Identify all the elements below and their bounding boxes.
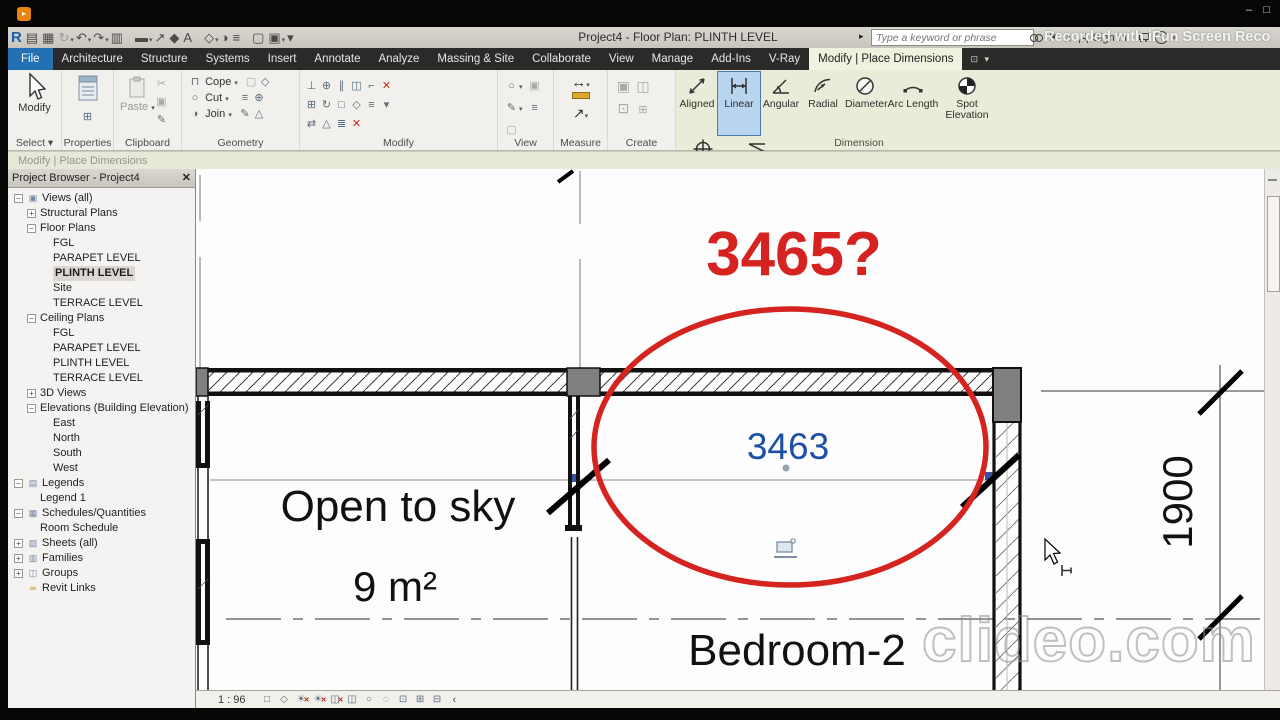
rotate-icon[interactable]: ↻ [319, 98, 334, 112]
steering-icon[interactable]: ▢ [504, 123, 519, 137]
links-icon: ∞ [27, 581, 39, 596]
create-panel: ▣ ◫ ⊡ ⊞ Create [608, 70, 676, 150]
tree-item-label: West [53, 461, 78, 476]
project-browser-title: Project Browser - Project4 [12, 169, 140, 187]
middle-wall[interactable] [548, 396, 609, 690]
tree-item-label: North [53, 431, 80, 446]
minimize-button[interactable]: – [1246, 4, 1252, 16]
vertical-scrollbar[interactable] [1264, 169, 1280, 690]
tree-item-floor-plans[interactable]: −Floor Plans [8, 221, 195, 236]
tree-item-site[interactable]: Site [8, 281, 195, 296]
revit-logo[interactable]: R [11, 29, 22, 47]
sync-icon[interactable]: ↻ [58, 29, 69, 47]
sheets-icon: ▧ [27, 536, 39, 551]
cutaway-icon[interactable]: ≡ [527, 101, 542, 115]
reveal-constraints-icon[interactable]: ⊡ [396, 693, 411, 706]
disabled-badge: ✕ [304, 694, 310, 707]
scale-button[interactable]: 1 : 96 [218, 694, 246, 706]
sun-path-icon[interactable]: ☀✕ [294, 693, 309, 706]
screen-recorder-watermark: Recorded with iFun Screen Reco [1044, 29, 1280, 45]
measure-icon-caret[interactable]: ▾ [149, 37, 153, 44]
tree-item-north[interactable]: North [8, 431, 195, 446]
tree-item-label: Room Schedule [40, 521, 118, 536]
copy-element-icon[interactable]: ⊞ [304, 98, 319, 112]
select-panel: Modify Select ▾ [8, 70, 62, 150]
undo-icon[interactable]: ↶ [76, 29, 87, 47]
scrollbar-thumb[interactable] [1267, 196, 1280, 292]
ribbon: Modify Select ▾ ⊞ Properties [8, 70, 1280, 151]
trim-icon[interactable]: ⌐ [364, 79, 379, 93]
tree-item-label: FGL [53, 326, 74, 341]
dimension-button-label: Radial [808, 98, 838, 110]
move-icon[interactable]: ⊕ [319, 79, 334, 93]
type-properties-icon[interactable]: ⊞ [80, 110, 95, 124]
expand-icon[interactable]: + [27, 389, 36, 398]
aligned-icon [685, 74, 709, 98]
dimension-symbol-icon[interactable] [774, 539, 797, 557]
shadows-icon[interactable]: ☀✕ [311, 693, 326, 706]
align-multi-icon[interactable]: ≣ [334, 117, 349, 131]
legends-icon: ▤ [27, 476, 39, 491]
ribbon-tab-bar: FileArchitectureStructureSystemsInsertAn… [8, 48, 1280, 70]
tree-item-label: Floor Plans [40, 221, 96, 236]
properties-panel-label[interactable]: Properties [62, 137, 113, 149]
crop-region-visible-icon[interactable]: ◫ [345, 693, 360, 706]
offset-icon[interactable]: ∥ [334, 79, 349, 93]
tree-item-fgl[interactable]: FGL [8, 326, 195, 341]
join-button[interactable]: ◑ Join ▾ ✎△ [188, 107, 299, 123]
modify-panel-label[interactable]: Modify [300, 137, 497, 149]
window-title: Project4 - Floor Plan: PLINTH LEVEL [548, 30, 808, 44]
tag-icon[interactable]: ◆ [169, 29, 179, 47]
search-expand-icon[interactable]: ▸ [859, 31, 864, 42]
tree-item-label: Sheets (all) [42, 536, 98, 551]
paste-label: Paste [120, 101, 148, 113]
print-icon[interactable]: ▥ [111, 29, 123, 47]
switch-windows-icon-caret[interactable]: ▾ [282, 37, 286, 44]
screen-left-band [0, 0, 8, 720]
tree-item-elevations-building-elevation[interactable]: −Elevations (Building Elevation) [8, 401, 195, 416]
tree-item-terrace-level[interactable]: TERRACE LEVEL [8, 296, 195, 311]
create-panel-label[interactable]: Create [608, 137, 675, 149]
disabled-badge: ✕ [321, 694, 327, 707]
dimension-button-label: Aligned [679, 98, 714, 110]
tab-manage[interactable]: Manage [643, 48, 703, 70]
linear-icon [727, 74, 751, 98]
aligned-dimension-icon[interactable]: ↗ [155, 29, 166, 47]
section-icon[interactable]: ◑ [221, 29, 229, 47]
dimension-angular-button[interactable]: Angular [760, 72, 802, 135]
temporary-hide-isolate-icon[interactable]: ◌ [379, 693, 394, 706]
ruler-icon [572, 92, 590, 99]
tab-analyze[interactable]: Analyze [369, 48, 428, 70]
tree-item-3d-views[interactable]: +3D Views [8, 386, 195, 401]
maximize-button[interactable]: □ [1263, 4, 1270, 16]
tree-item-label: TERRACE LEVEL [53, 296, 143, 311]
families-icon: ▥ [27, 551, 39, 566]
modify-panel: ⊥⊕∥◫⌐✕ ⊞↻□◇≡▾ ⇄△≣✕ Modify [300, 70, 498, 150]
project-browser: Project Browser - Project4 ✕ −▣Views (al… [8, 169, 196, 708]
properties-icon[interactable] [76, 74, 100, 102]
view-panel-label[interactable]: View [498, 137, 553, 149]
switch-windows-icon[interactable]: ▣ [268, 29, 280, 47]
tree-item-room-schedule[interactable]: Room Schedule [8, 521, 195, 536]
expand-icon[interactable]: + [27, 209, 36, 218]
customize-qat-icon[interactable]: ▾ [287, 29, 294, 47]
clideo-watermark: clideo.com [922, 605, 1256, 676]
radial-icon [811, 74, 835, 98]
crop-view-icon[interactable]: ◫✕ [328, 693, 343, 706]
pin-icon[interactable]: ▾ [379, 98, 394, 112]
ribbon-display-toggle-icon[interactable]: ⊡ ▾ [962, 48, 991, 70]
tree-item-label: South [53, 446, 82, 461]
angular-icon [769, 74, 793, 98]
dimension-button-label: Spot Elevation [945, 98, 988, 121]
tab-structure[interactable]: Structure [132, 48, 197, 70]
create-group-icon[interactable]: ▣ [616, 79, 631, 93]
paste-button[interactable]: Paste ▾ [120, 76, 155, 113]
spot-elevation-icon [955, 74, 979, 98]
mouse-cursor [1045, 539, 1071, 576]
unlocked-view-icon[interactable]: ⊟ [430, 693, 445, 706]
tree-item-label: Groups [42, 566, 78, 581]
revit-application-window: ▸ – □ R▤▦↻▾↶▾↷▾▥▬▾↗◆A◇▾◑≡▢▣▾▾ Project4 -… [0, 0, 1280, 720]
tree-item-legends[interactable]: −▤Legends [8, 476, 195, 491]
tree-item-label: 3D Views [40, 386, 86, 401]
options-bar: Modify | Place Dimensions [8, 151, 1280, 169]
cut-geometry-button[interactable]: ○ Cut ▾ ≡⊕ [188, 91, 299, 107]
collapse-icon[interactable]: − [27, 224, 36, 233]
unpin-icon[interactable]: △ [319, 117, 334, 131]
tree-item-label: Elevations (Building Elevation) [40, 401, 189, 416]
split-icon[interactable]: ≡ [364, 98, 379, 112]
dimension-3463-text[interactable]: 3463 [747, 426, 829, 467]
collapse-icon[interactable]: − [14, 509, 23, 518]
create-similar-icon[interactable]: ◫ [635, 79, 650, 93]
tab-v-ray[interactable]: V-Ray [760, 48, 809, 70]
tree-item-south[interactable]: South [8, 446, 195, 461]
tree-item-legend-1[interactable]: Legend 1 [8, 491, 195, 506]
views-icon: ▣ [27, 191, 39, 206]
tree-item-label: Views (all) [42, 191, 93, 206]
tab-file[interactable]: File [8, 48, 53, 70]
tree-item-label: Legends [42, 476, 84, 491]
expand-icon[interactable]: + [14, 554, 23, 563]
match-properties-icon[interactable]: ✎ [154, 113, 169, 127]
open-icon[interactable]: ▤ [26, 29, 38, 47]
redo-icon-caret[interactable]: ▾ [105, 37, 109, 44]
tab-massing-site[interactable]: Massing & Site [428, 48, 523, 70]
dimension-button-label: Linear [724, 98, 753, 110]
save-icon[interactable]: ▦ [42, 29, 54, 47]
red-annotation-query: 3465? [706, 220, 882, 289]
tab-architecture[interactable]: Architecture [53, 48, 132, 70]
diameter-icon [853, 74, 877, 98]
cope-button[interactable]: ⊓ Cope ▾ ▢◇ [188, 75, 299, 91]
demolish-icon[interactable]: ✕ [349, 117, 364, 131]
measure-panel-label[interactable]: Measure [554, 137, 607, 149]
dimension-button-label: Diameter [845, 98, 888, 110]
close-hidden-windows-icon[interactable]: ▢ [252, 29, 264, 47]
view-panel: ○▾ ▣ ✎▾ ≡ ▢ View [498, 70, 554, 150]
dimension-drag-dot[interactable] [783, 465, 790, 472]
close-icon[interactable]: ✕ [182, 169, 191, 187]
create-assembly-icon[interactable]: ⊡ [616, 101, 631, 115]
geometry-panel-label[interactable]: Geometry [182, 137, 299, 149]
worksharing-display-icon[interactable]: ⊞ [413, 693, 428, 706]
tree-item-east[interactable]: East [8, 416, 195, 431]
measure-panel: ↔▾ ↗▾ Measure [554, 70, 608, 150]
tab-add-ins[interactable]: Add-Ins [702, 48, 760, 70]
cut-icon[interactable]: ✂ [154, 77, 169, 91]
sync-icon-caret[interactable]: ▾ [70, 37, 74, 44]
clipboard-panel: Paste ▾ ✂ ▣ ✎ Clipboard [114, 70, 182, 150]
tree-item-parapet-level[interactable]: PARAPET LEVEL [8, 341, 195, 356]
tree-item-label: Structural Plans [40, 206, 118, 221]
tree-item-views-all[interactable]: −▣Views (all) [8, 191, 195, 206]
copy-icon[interactable]: ▣ [154, 95, 169, 109]
measure-between-refs-button[interactable]: ↗▾ [554, 105, 607, 123]
measure-icon[interactable]: ▬ [135, 29, 148, 47]
tree-item-schedules-quantities[interactable]: −▦Schedules/Quantities [8, 506, 195, 521]
modify-tool-button[interactable]: Modify [8, 72, 61, 134]
tree-item-sheets-all[interactable]: +▧Sheets (all) [8, 536, 195, 551]
dimension-spot-elevation-button[interactable]: Spot Elevation [940, 72, 994, 135]
scrollbar-split-icon[interactable] [1268, 179, 1277, 184]
tree-item-label: Schedules/Quantities [42, 506, 146, 521]
dimension-linear-button[interactable]: Linear [718, 72, 760, 135]
expand-icon[interactable]: + [14, 569, 23, 578]
dimension-button-label: Arc Length [888, 98, 939, 110]
scale-icon[interactable]: ◇ [349, 98, 364, 112]
dimension-aligned-button[interactable]: Aligned [676, 72, 718, 135]
tree-item-label: FGL [53, 236, 74, 251]
contextual-panel-filler [1042, 70, 1280, 150]
tree-item-label: TERRACE LEVEL [53, 371, 143, 386]
collapse-icon[interactable]: − [27, 404, 36, 413]
tree-item-groups[interactable]: +◫Groups [8, 566, 195, 581]
default-3d-view-icon[interactable]: ◇ [204, 29, 214, 47]
default-3d-view-icon-caret[interactable]: ▾ [215, 37, 219, 44]
groups-icon: ◫ [27, 566, 39, 581]
tree-item-label: Families [42, 551, 83, 566]
text-icon[interactable]: A [183, 29, 192, 47]
recorder-app-icon[interactable]: ▸ [17, 7, 31, 21]
tree-item-west[interactable]: West [8, 461, 195, 476]
undo-icon-caret[interactable]: ▾ [88, 37, 92, 44]
dimension-panel-label[interactable]: Dimension [676, 137, 1042, 149]
drawing-area[interactable]: 1900 3463 Open to sky 9 m² Bedroom-2 346… [196, 169, 1264, 690]
insert-views-icon[interactable]: ⊞ [635, 103, 650, 117]
grid-tick [558, 171, 573, 182]
extend-icon[interactable]: ⇄ [304, 117, 319, 131]
tree-item-terrace-level[interactable]: TERRACE LEVEL [8, 371, 195, 386]
tree-item-label: Revit Links [42, 581, 96, 596]
tree-item-revit-links[interactable]: ∞Revit Links [8, 581, 195, 596]
tree-item-label: East [53, 416, 75, 431]
project-browser-header[interactable]: Project Browser - Project4 ✕ [8, 169, 195, 188]
linework-icon[interactable]: ✎ [504, 101, 519, 115]
collapse-icon[interactable]: − [27, 314, 36, 323]
dimension-panel: AlignedLinearAngularRadialDiameterArc Le… [676, 70, 1042, 150]
tab-insert[interactable]: Insert [259, 48, 306, 70]
view-control-icons: □◇☀✕☀✕◫✕◫○◌⊡⊞⊟ [260, 693, 447, 706]
thin-lines-icon[interactable]: ≡ [232, 29, 240, 47]
tree-item-plinth-level[interactable]: PLINTH LEVEL [8, 266, 195, 281]
dimension-button-label: Angular [763, 98, 799, 110]
mirror-icon[interactable]: ◫ [349, 79, 364, 93]
dimension-1900-text: 1900 [1154, 455, 1201, 548]
room-open-to-sky-label[interactable]: Open to sky [281, 482, 516, 531]
collapse-chevron[interactable]: ‹ [453, 694, 457, 706]
disabled-badge: ✕ [338, 694, 344, 707]
tree-item-label: Legend 1 [40, 491, 86, 506]
tree-item-label: Ceiling Plans [40, 311, 104, 326]
tree-item-label: PLINTH LEVEL [53, 266, 135, 281]
project-browser-tree: −▣Views (all)+Structural Plans−Floor Pla… [8, 188, 195, 596]
reveal-hidden-elements-icon[interactable]: ○ [362, 693, 377, 706]
arc-length-icon [901, 74, 925, 98]
help-search-input[interactable] [871, 29, 1034, 46]
screen-bottom-band [0, 708, 1280, 720]
tree-item-families[interactable]: +▥Families [8, 551, 195, 566]
room-bedroom2-label[interactable]: Bedroom-2 [688, 626, 906, 675]
delete-icon[interactable]: ✕ [379, 79, 394, 93]
tree-item-label: PARAPET LEVEL [53, 341, 141, 356]
paste-icon [128, 76, 146, 98]
collapse-icon[interactable]: − [14, 479, 23, 488]
view-control-bar: 1 : 96 □◇☀✕☀✕◫✕◫○◌⊡⊞⊟ ‹ [196, 690, 1280, 708]
align-icon[interactable]: ⊥ [304, 79, 319, 93]
screen-top-band [0, 0, 1280, 27]
properties-panel: ⊞ Properties [62, 70, 114, 150]
left-wall[interactable] [196, 396, 210, 690]
tab-systems[interactable]: Systems [197, 48, 259, 70]
tree-item-parapet-level[interactable]: PARAPET LEVEL [8, 251, 195, 266]
tab-modify-place-dimensions[interactable]: Modify | Place Dimensions [809, 48, 962, 70]
quick-access-toolbar: R▤▦↻▾↶▾↷▾▥▬▾↗◆A◇▾◑≡▢▣▾▾ [8, 29, 296, 47]
expand-icon[interactable]: + [14, 539, 23, 548]
dimension-diameter-button[interactable]: Diameter [844, 72, 886, 135]
dimension-radial-button[interactable]: Radial [802, 72, 844, 135]
tree-item-fgl[interactable]: FGL [8, 236, 195, 251]
geometry-panel: ⊓ Cope ▾ ▢◇ ○ Cut ▾ ≡⊕ ◑ Join ▾ ✎△ Geome… [182, 70, 300, 150]
array-icon[interactable]: □ [334, 98, 349, 112]
tree-item-label: PARAPET LEVEL [53, 251, 141, 266]
redo-icon[interactable]: ↷ [93, 29, 104, 47]
tree-item-ceiling-plans[interactable]: −Ceiling Plans [8, 311, 195, 326]
tab-annotate[interactable]: Annotate [305, 48, 369, 70]
schedules-icon: ▦ [27, 506, 39, 521]
tree-item-plinth-level[interactable]: PLINTH LEVEL [8, 356, 195, 371]
dimension-arc-length-button[interactable]: Arc Length [886, 72, 940, 135]
clipboard-panel-label[interactable]: Clipboard [114, 137, 181, 149]
tab-collaborate[interactable]: Collaborate [523, 48, 600, 70]
modify-cursor-icon [24, 72, 46, 102]
select-panel-label[interactable]: Select ▾ [8, 137, 61, 149]
modify-button-label: Modify [18, 102, 50, 114]
tab-view[interactable]: View [600, 48, 643, 70]
measure-button[interactable]: ↔▾ [554, 74, 607, 99]
tree-item-label: Site [53, 281, 72, 296]
visual-style-icon[interactable]: ◇ [277, 693, 292, 706]
tree-item-label: PLINTH LEVEL [53, 356, 129, 371]
lightbulb-icon[interactable]: ○ [504, 79, 519, 93]
show-crop-region-icon[interactable]: □ [260, 693, 275, 706]
collapse-icon[interactable]: − [14, 194, 23, 203]
search-binoculars-icon[interactable] [1030, 34, 1043, 42]
tree-item-structural-plans[interactable]: +Structural Plans [8, 206, 195, 221]
room-area-label[interactable]: 9 m² [353, 563, 437, 610]
render-icon[interactable]: ▣ [527, 79, 542, 93]
